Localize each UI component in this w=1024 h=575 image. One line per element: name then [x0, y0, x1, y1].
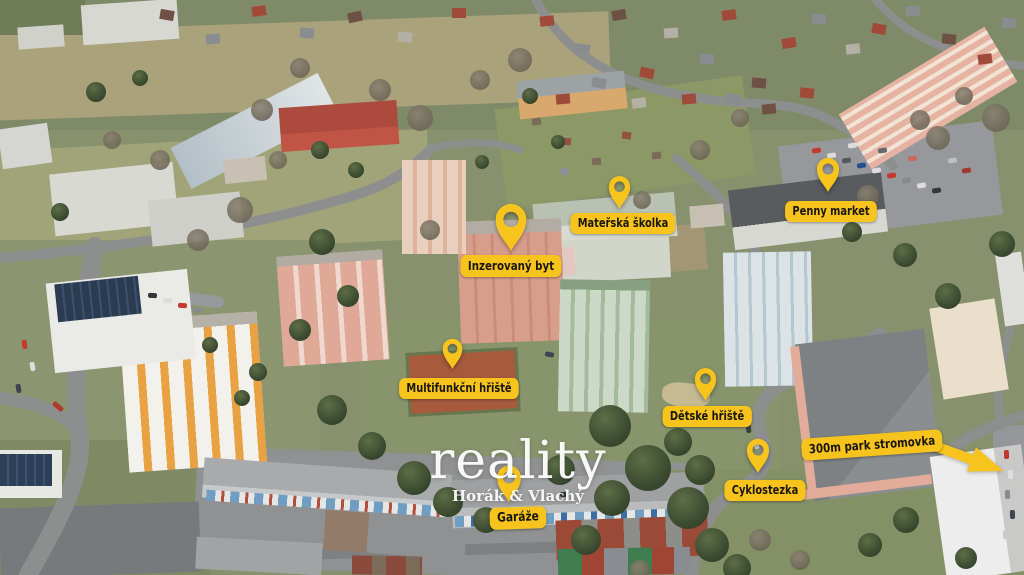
deciduous-tree [955, 87, 973, 105]
conifer-tree [955, 547, 977, 569]
detske-hriste-pin-icon [693, 366, 718, 406]
deciduous-tree [251, 99, 273, 121]
village-house [452, 8, 466, 18]
village-house [811, 13, 826, 25]
agency-logo-text: reality [429, 438, 606, 485]
deciduous-tree [103, 131, 121, 149]
deciduous-tree [926, 126, 950, 150]
conifer-tree [685, 455, 715, 485]
parked-car [193, 308, 202, 314]
deciduous-tree [420, 220, 440, 240]
village-house [300, 27, 315, 38]
parked-car [178, 303, 187, 309]
materska-skolka-label: Mateřská školka [570, 213, 675, 234]
village-house [1002, 18, 1017, 29]
conifer-tree [337, 285, 359, 307]
conifer-tree [522, 88, 538, 104]
materska-skolka-pin-icon [607, 174, 632, 214]
conifer-tree [86, 82, 106, 102]
village-house [251, 5, 266, 17]
village-house [721, 9, 736, 21]
deciduous-tree [407, 105, 433, 131]
village-house [206, 33, 221, 44]
village-house [906, 6, 921, 17]
village-house [700, 53, 715, 64]
village-house [652, 152, 662, 160]
sw-corner-solar [0, 454, 52, 486]
village-house [592, 158, 602, 166]
yard-house [223, 156, 267, 184]
garaze-label: Garáže [489, 506, 546, 530]
parked-car [148, 293, 157, 299]
village-house [942, 33, 957, 44]
village-house [532, 117, 542, 125]
topleft-block [17, 24, 64, 49]
conifer-tree [989, 231, 1015, 257]
multifunkcni-hriste-label: Multifunkční hřiště [399, 378, 519, 399]
cyklostezka-pin-icon [745, 437, 771, 478]
village-house [591, 77, 606, 89]
conifer-tree [311, 141, 329, 159]
parked-car [1003, 530, 1008, 539]
village-house [725, 93, 740, 105]
penny-market-pin-icon [815, 156, 841, 197]
conifer-tree [317, 395, 347, 425]
conifer-tree [723, 554, 751, 575]
village-house [752, 78, 767, 89]
conifer-tree [51, 203, 69, 221]
deciduous-tree [290, 58, 310, 78]
road-path [430, 143, 520, 150]
deciduous-tree [508, 48, 532, 72]
conifer-tree [893, 243, 917, 267]
conifer-tree [625, 445, 671, 491]
deciduous-tree [633, 191, 651, 209]
deciduous-tree [910, 110, 930, 130]
village-house [397, 31, 412, 43]
cream-building-right [929, 298, 1009, 399]
agency-watermark: reality Horák & Vlachý [429, 438, 606, 505]
conifer-tree [695, 528, 729, 562]
deciduous-tree [982, 104, 1010, 132]
conifer-tree [132, 70, 148, 86]
village-house [664, 28, 679, 39]
village-house [560, 168, 569, 176]
penny-market-label: Penny market [785, 201, 877, 222]
garage-strip-sw [195, 537, 323, 575]
deciduous-tree [790, 550, 810, 570]
village-house [846, 43, 861, 54]
conifer-tree [475, 155, 489, 169]
inzerovany-byt-pin-icon [493, 201, 529, 257]
deciduous-tree [227, 197, 253, 223]
village-house [977, 53, 992, 65]
village-house [622, 131, 632, 139]
conifer-tree [289, 319, 311, 341]
parked-car [163, 298, 172, 304]
topleft-multistory [81, 0, 180, 45]
village-house [556, 93, 571, 104]
deciduous-tree [369, 79, 391, 101]
white-hall-nw [0, 123, 53, 170]
conifer-tree [234, 390, 250, 406]
conifer-tree [935, 283, 961, 309]
parked-car [1010, 510, 1015, 519]
village-house [575, 43, 590, 55]
deciduous-tree [630, 560, 650, 575]
village-house [682, 93, 697, 104]
conifer-tree [249, 363, 267, 381]
salmon-left-building [276, 249, 389, 366]
village-house [762, 103, 777, 114]
parked-car [1005, 490, 1010, 499]
small-striped-tower [402, 160, 466, 254]
deciduous-tree [187, 229, 209, 251]
deciduous-tree [690, 140, 710, 160]
village-house [800, 87, 815, 98]
conifer-tree [397, 461, 431, 495]
conifer-tree [358, 432, 386, 460]
parked-car [1008, 470, 1013, 479]
cyklostezka-label: Cyklostezka [724, 480, 805, 501]
deciduous-tree [150, 150, 170, 170]
conifer-tree [202, 337, 218, 353]
detske-hriste-label: Dětské hřiště [662, 406, 751, 427]
village-house [540, 15, 555, 26]
deciduous-tree [749, 529, 771, 551]
conifer-tree [893, 507, 919, 533]
conifer-tree [664, 428, 692, 456]
conifer-tree [309, 229, 335, 255]
deciduous-tree [470, 70, 490, 90]
agency-subtitle: Horák & Vlachý [429, 487, 606, 505]
rusty-roof-row [352, 555, 422, 575]
multifunkcni-hriste-pin-icon [441, 337, 464, 374]
deciduous-tree [731, 109, 749, 127]
mid-house [689, 204, 725, 229]
aerial-photo: reality Horák & Vlachý Inzerovaný bytMat… [0, 0, 1024, 575]
green-stripe-tower [558, 279, 650, 413]
inzerovany-byt-label: Inzerovaný byt [461, 255, 562, 277]
conifer-tree [667, 487, 709, 529]
red-roof-hall [279, 100, 400, 152]
conifer-tree [858, 533, 882, 557]
conifer-tree [571, 525, 601, 555]
conifer-tree [551, 135, 565, 149]
conifer-tree [842, 222, 862, 242]
village-house [631, 97, 646, 109]
deciduous-tree [269, 151, 287, 169]
conifer-tree [348, 162, 364, 178]
